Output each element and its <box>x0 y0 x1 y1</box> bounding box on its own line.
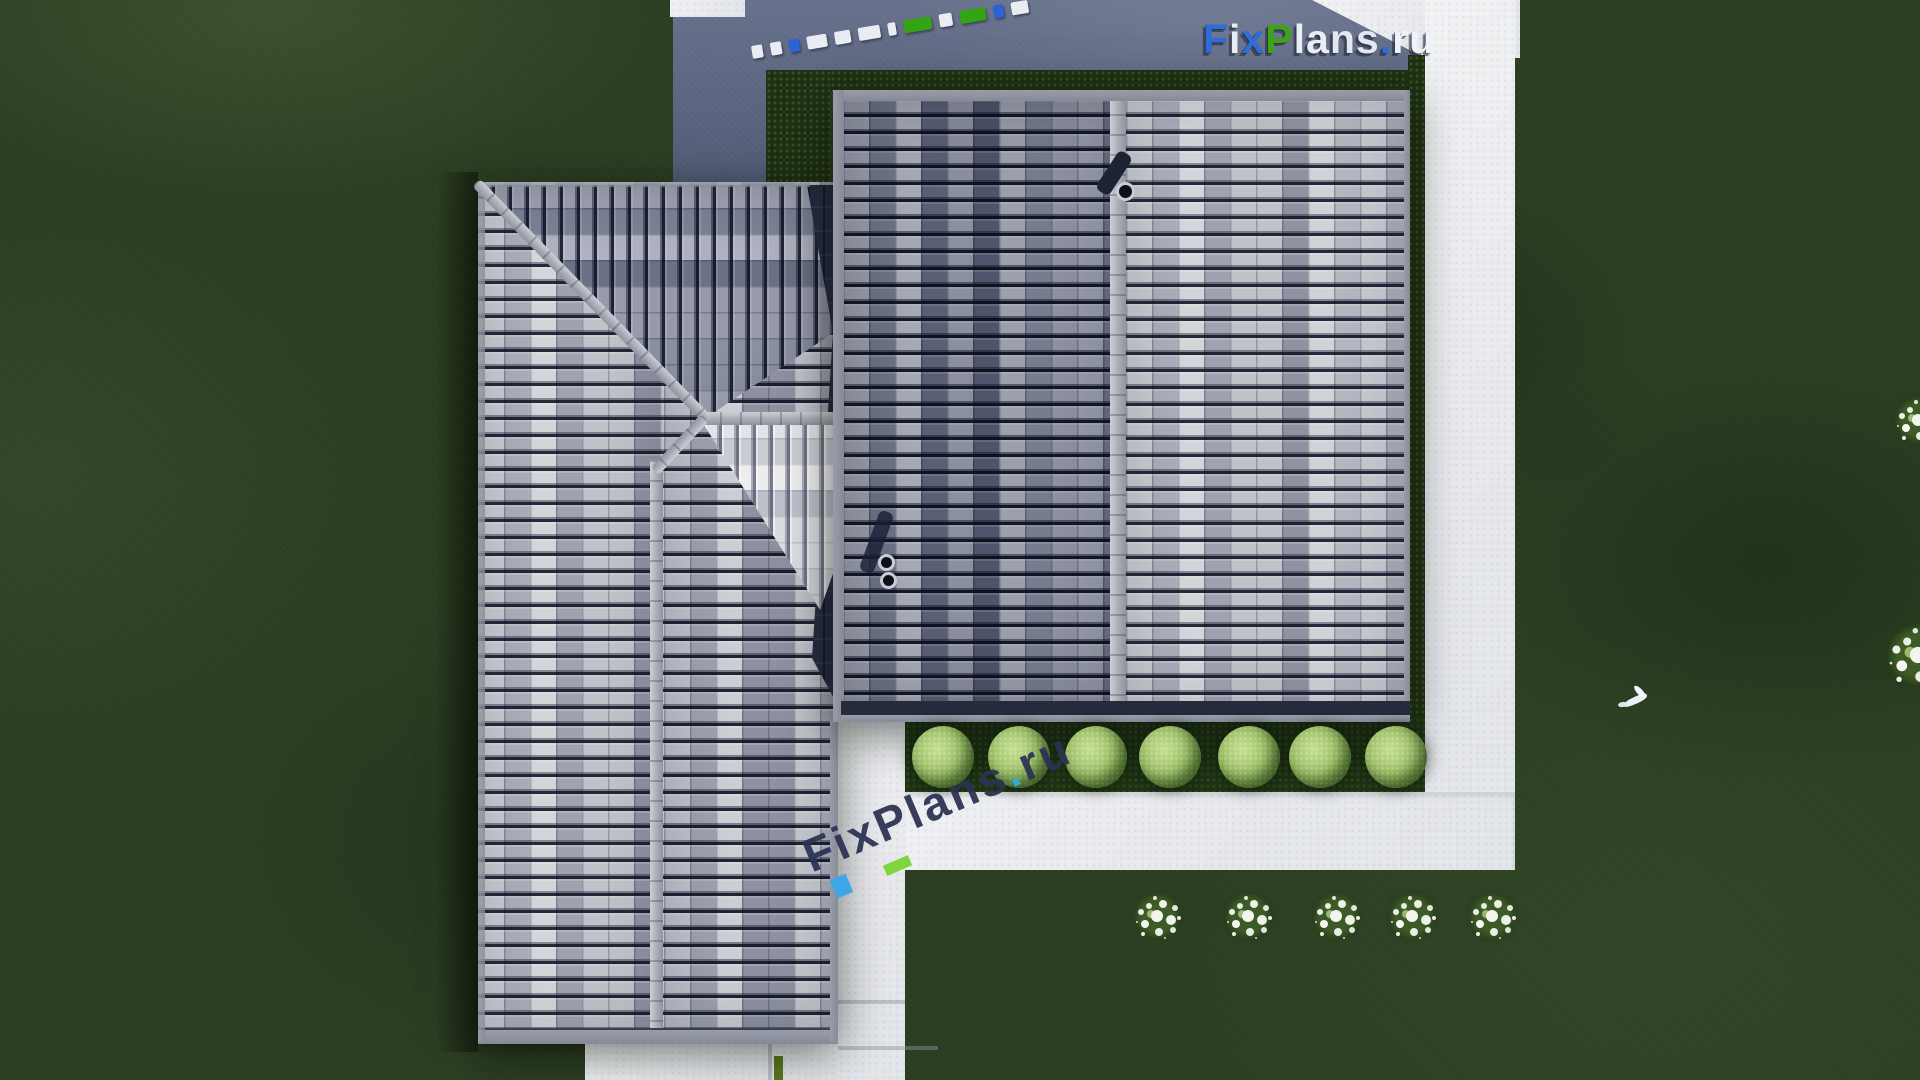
path-seam <box>838 1046 938 1050</box>
letter: a <box>1306 16 1330 62</box>
letter: u <box>1409 16 1435 62</box>
flower-cluster <box>1406 910 1418 922</box>
letter: n <box>1330 16 1356 62</box>
round-bush <box>1365 726 1427 788</box>
watermark-dash <box>751 44 764 59</box>
terrace-seam <box>768 1042 772 1080</box>
flower-bush <box>1218 886 1278 946</box>
terrace-bottom <box>585 1042 838 1080</box>
watermark-dash <box>887 22 897 36</box>
round-bush <box>1065 726 1127 788</box>
round-bush <box>1218 726 1280 788</box>
eave-left <box>833 90 844 722</box>
grass-notch-top-left <box>766 70 830 183</box>
roof-left-wing <box>478 182 838 1042</box>
watermark-dash <box>993 4 1005 18</box>
edge-flower-bush <box>1878 615 1920 696</box>
flower-bush <box>1127 886 1187 946</box>
eave-bottom-shadow <box>841 701 1410 715</box>
flower-cluster <box>1910 647 1920 663</box>
round-bush <box>1289 726 1351 788</box>
roof-slope-east <box>1126 100 1404 707</box>
flower-bush <box>1462 886 1522 946</box>
roof-right-wing <box>833 90 1410 722</box>
eave-top <box>478 182 810 187</box>
grass-shadow-left-of-house <box>436 172 478 1052</box>
hedge-strip-top <box>830 70 1408 92</box>
path-seam <box>838 1000 905 1004</box>
path-left-of-garden <box>838 717 905 1080</box>
watermark-dash <box>769 41 783 56</box>
flower-cluster <box>1242 910 1254 922</box>
flying-bird <box>1622 688 1652 710</box>
hedge-strip-right <box>1408 55 1425 792</box>
eave-bottom <box>478 1028 838 1044</box>
letter: . <box>1380 16 1392 62</box>
round-bush <box>1139 726 1201 788</box>
fixplans-logo: FixPlans.ru <box>1203 16 1435 63</box>
roof-slope-west <box>843 100 1120 712</box>
eave-bottom <box>841 715 1410 722</box>
watermark-dash <box>938 13 953 28</box>
vent-pipe-icon <box>880 572 897 589</box>
eave-top <box>833 90 1410 101</box>
edge-flower-bush <box>1888 390 1920 450</box>
planting-strip-bottom <box>774 1056 783 1080</box>
path-top-patch <box>670 0 745 17</box>
watermark-dash <box>789 38 801 52</box>
vent-pipe-icon <box>878 554 895 571</box>
letter: r <box>1392 16 1409 62</box>
flower-bush <box>1382 886 1442 946</box>
letter: P <box>1265 16 1293 62</box>
chimney-pipe-icon <box>1116 182 1135 201</box>
watermark-dash <box>834 30 852 45</box>
letter: s <box>1356 16 1380 62</box>
flower-bush <box>1306 886 1366 946</box>
flower-cluster <box>1486 910 1498 922</box>
letter: x <box>1241 16 1265 62</box>
path-right-vertical <box>1425 0 1515 870</box>
aerial-house-render: FixPlans.ru FixPlans.ru <box>0 0 1920 1080</box>
flower-cluster <box>1912 414 1920 426</box>
eave-right <box>1404 90 1410 722</box>
flower-cluster <box>1330 910 1342 922</box>
flower-cluster <box>1151 910 1163 922</box>
eave-left <box>478 182 485 1042</box>
letter: l <box>1294 16 1306 62</box>
ridge-vertical <box>650 460 663 1028</box>
letter: i <box>1229 16 1241 62</box>
letter: F <box>1203 16 1229 62</box>
